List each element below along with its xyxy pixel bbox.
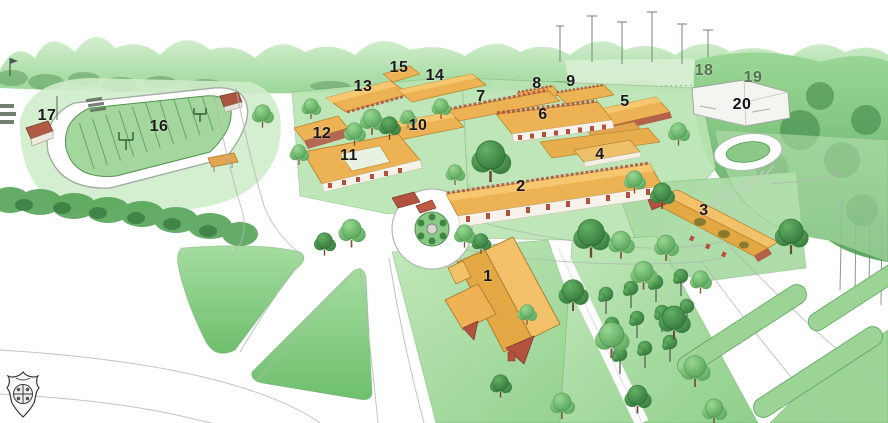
campus-map: 1234567891011121314151617181920 — [0, 0, 888, 423]
gazebo-icon — [427, 224, 437, 234]
campus-map-illustration — [0, 0, 888, 423]
